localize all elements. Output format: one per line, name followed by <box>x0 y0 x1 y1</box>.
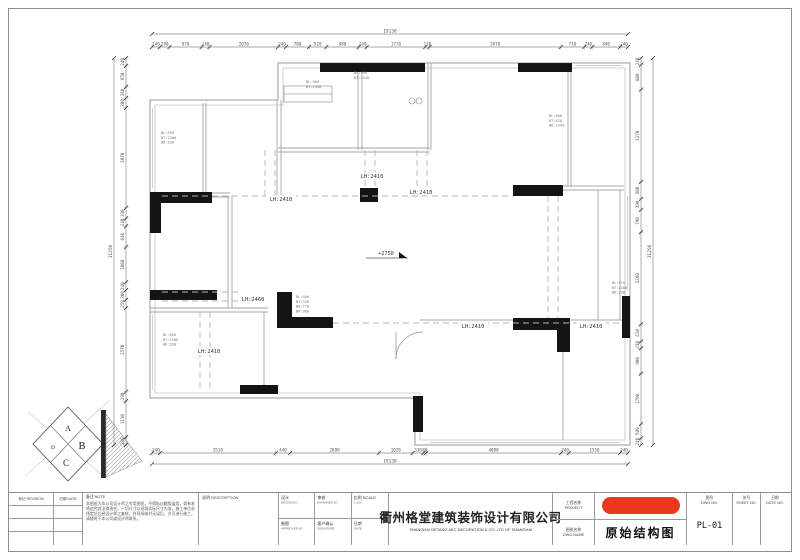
beam-height-label: LH:2410 <box>270 197 293 203</box>
dimension-label: 290 <box>161 41 169 46</box>
dimension-label: 3270 <box>635 130 640 141</box>
dimension-label: 3260 <box>635 273 640 284</box>
window-annotation: BT:2300 <box>161 136 176 140</box>
revision-cell <box>54 506 82 519</box>
project-name-row <box>595 493 686 520</box>
window-annotation: BL:900 <box>354 71 367 75</box>
dateno-label: 日期 DATE NO. <box>761 493 789 507</box>
dimension-label: 600 <box>635 186 640 194</box>
dimension-label: 300 <box>120 291 125 299</box>
note-header: 备注 NOTE <box>86 495 195 500</box>
dimension-label: 390 <box>635 200 640 208</box>
dimension-label: 240 <box>585 41 593 46</box>
dimension-label: 610 <box>635 329 640 337</box>
description-header: 说明 DESCRIPTION <box>202 495 275 501</box>
company-name-en: SHANGHAI GETANG AEC DECORATION & CO. LTD… <box>409 527 532 532</box>
revision-table: 标记 REVISION 日期 DATE <box>9 493 83 545</box>
logo-letter: D <box>51 445 55 451</box>
company-name-cn: 衢州格堂建筑装饰设计有限公司 <box>380 507 562 526</box>
revision-cell <box>9 519 54 532</box>
window-annotation: BT:2440 <box>306 85 321 89</box>
window-annotation: BL:900 <box>306 80 319 84</box>
window-annotation: BT:330 <box>296 300 309 304</box>
window-annotation: BL:970 <box>612 281 625 285</box>
beam-height-label: LH:2410 <box>410 190 433 196</box>
sheetno-label: 张号 SHEET NO. <box>733 493 760 507</box>
dimension-label: 240 <box>120 437 125 445</box>
dimension-label: 240 <box>202 41 210 46</box>
window-annotation: BD:330 <box>161 141 174 145</box>
door-arc <box>396 332 423 359</box>
name-values: 原始结构图 <box>595 493 687 545</box>
dimension-label: 250 <box>120 300 125 308</box>
dimension-label: 2690 <box>330 447 341 452</box>
window-annotation: BH:900 <box>296 309 309 313</box>
window-annotation: BL:500 <box>296 295 309 299</box>
field-examine: 审核 EXAMINED BY <box>315 493 351 519</box>
signature-fields: 设计 DESIGN BY 审核 EXAMINED BY 比例 SCALE 1:1… <box>279 493 389 545</box>
dimension-label: 240 <box>635 437 640 445</box>
dimension-label: 340 <box>120 88 125 96</box>
dimension-label: 970 <box>182 41 190 46</box>
level-label: +2750 <box>378 251 394 257</box>
dimension-label: 710 <box>569 41 577 46</box>
dimension-label: 240 <box>620 41 628 46</box>
dimension-label: 790 <box>635 217 640 225</box>
logo-letter: C <box>63 458 69 468</box>
dimension-label: 240 <box>120 282 125 290</box>
dimension-label: 1110 <box>120 414 125 425</box>
beam-height-label: LH:2410 <box>198 349 221 355</box>
note-section: 备注 NOTE 本图纸为本公司设计师之专用图纸，不得私自翻版盗用，如有发现 将追… <box>83 493 199 545</box>
dimension-label: 2570 <box>120 344 125 355</box>
window-annotation: BT:2400 <box>612 286 627 290</box>
dimension-label: 1020 <box>391 447 402 452</box>
dimension-total: 11250 <box>108 244 114 258</box>
dimension-label: 3970 <box>490 41 501 46</box>
beam-height-label: LH:2410 <box>580 324 603 330</box>
project-name-stamp <box>602 497 680 514</box>
dimension-label: 2070 <box>239 41 250 46</box>
dimension-label: 330 <box>120 209 125 217</box>
dimension-total: 19130 <box>383 28 397 34</box>
window-annotation: BD:1490 <box>549 124 564 128</box>
description-section: 说明 DESCRIPTION <box>199 493 279 545</box>
window-annotation: BT:1500 <box>163 338 178 342</box>
dimension-label: 300 <box>120 99 125 107</box>
dimension-label: 80 <box>422 447 428 452</box>
dimension-label: 1770 <box>391 41 402 46</box>
dimension-label: 240 <box>620 447 628 452</box>
revision-cell <box>9 532 54 545</box>
dimension-label: 520 <box>314 41 322 46</box>
title-label: 图纸名称 DWG.NAME <box>553 520 594 546</box>
dimension-label: 650 <box>120 72 125 80</box>
window-annotation: BT:2440 <box>354 76 369 80</box>
dimension-label: 880 <box>635 73 640 81</box>
dimension-label: 640 <box>120 232 125 240</box>
dimension-label: 240 <box>120 58 125 66</box>
window-annotation: BL:950 <box>161 131 174 135</box>
logo-letter: B <box>78 441 85 452</box>
dimension-label: 240 <box>635 57 640 65</box>
revision-cell <box>9 506 54 519</box>
window-annotation: BL:950 <box>163 333 176 337</box>
window-annotation: BD:330 <box>612 291 625 295</box>
dimension-label: 240 <box>152 41 160 46</box>
dimension-label: 130 <box>424 41 432 46</box>
drawing-sheet: ABCD 24029097024020702407005209802401770… <box>0 0 800 560</box>
window-annotation: BD:330 <box>163 343 176 347</box>
revision-header: 标记 REVISION <box>9 493 54 506</box>
dimension-label: 240 <box>152 447 160 452</box>
window-annotation: BT:520 <box>549 119 562 123</box>
floor-plan: ABCD 24029097024020702407005209802401770… <box>0 0 800 492</box>
dimension-label: 240 <box>561 447 569 452</box>
dimension-label: 1550 <box>589 447 600 452</box>
revision-cell <box>54 519 82 532</box>
dimension-label: 240 <box>635 341 640 349</box>
drawing-title: 原始结构图 <box>595 520 686 546</box>
date-number-block: 日期 DATE NO. <box>761 493 789 545</box>
dimension-label: 700 <box>294 41 302 46</box>
company-block: 衢州格堂建筑装饰设计有限公司 SHANGHAI GETANG AEC DECOR… <box>389 493 553 545</box>
name-labels: 工程名称 PROJECT 图纸名称 DWG.NAME <box>553 493 595 545</box>
dimension-label: 4090 <box>489 447 500 452</box>
dimension-label: 1790 <box>635 393 640 404</box>
dimension-label: 1080 <box>120 259 125 270</box>
dimension-label: 240 <box>120 218 125 226</box>
title-block: 标记 REVISION 日期 DATE 备注 NOTE 本图纸为本公司设计师之专… <box>9 492 791 545</box>
dwgno-label: 图号 DWG NO. <box>687 493 732 507</box>
beam-height-label: LH:2460 <box>242 297 265 303</box>
dimension-label: 330 <box>414 447 422 452</box>
dimension-label: 290 <box>120 392 125 400</box>
dimension-label: 900 <box>635 357 640 365</box>
dimension-layer: 2402909702402070240700520980240177013039… <box>108 28 655 466</box>
dimension-label: 980 <box>339 41 347 46</box>
logo-letter: A <box>65 424 71 433</box>
drawing-number-block: 图号 DWG NO. PL-01 <box>687 493 733 545</box>
beam-height-label: LH:2410 <box>361 174 384 180</box>
dimension-label: 3070 <box>120 152 125 163</box>
dimension-label: 840 <box>602 41 610 46</box>
dimension-label: 440 <box>279 447 287 452</box>
dimension-label: 240 <box>278 41 286 46</box>
drawing-number: PL-01 <box>687 507 732 545</box>
dimension-label: 240 <box>359 41 367 46</box>
project-label: 工程名称 PROJECT <box>553 493 594 520</box>
dimension-total: 19130 <box>383 458 397 464</box>
revision-date-header: 日期 DATE <box>54 493 82 506</box>
dimension-label: 3510 <box>213 447 224 452</box>
window-annotation: BL:500 <box>549 114 562 118</box>
dimension-total: 11250 <box>647 244 653 258</box>
sheet-number-block: 张号 SHEET NO. <box>733 493 761 545</box>
field-design: 设计 DESIGN BY <box>279 493 315 519</box>
note-line: 请随时于本公司或设计师联系。 <box>86 516 195 521</box>
fixtures <box>284 86 422 104</box>
revision-cell <box>54 532 82 545</box>
dimension-label: 500 <box>635 427 640 435</box>
field-client: 客户确认 SIGNATURE <box>315 519 351 545</box>
beam-height-label: LH:2410 <box>462 324 485 330</box>
field-draw: 制图 APPROVED BY <box>279 519 315 545</box>
window-annotation: BD:770 <box>296 305 309 309</box>
